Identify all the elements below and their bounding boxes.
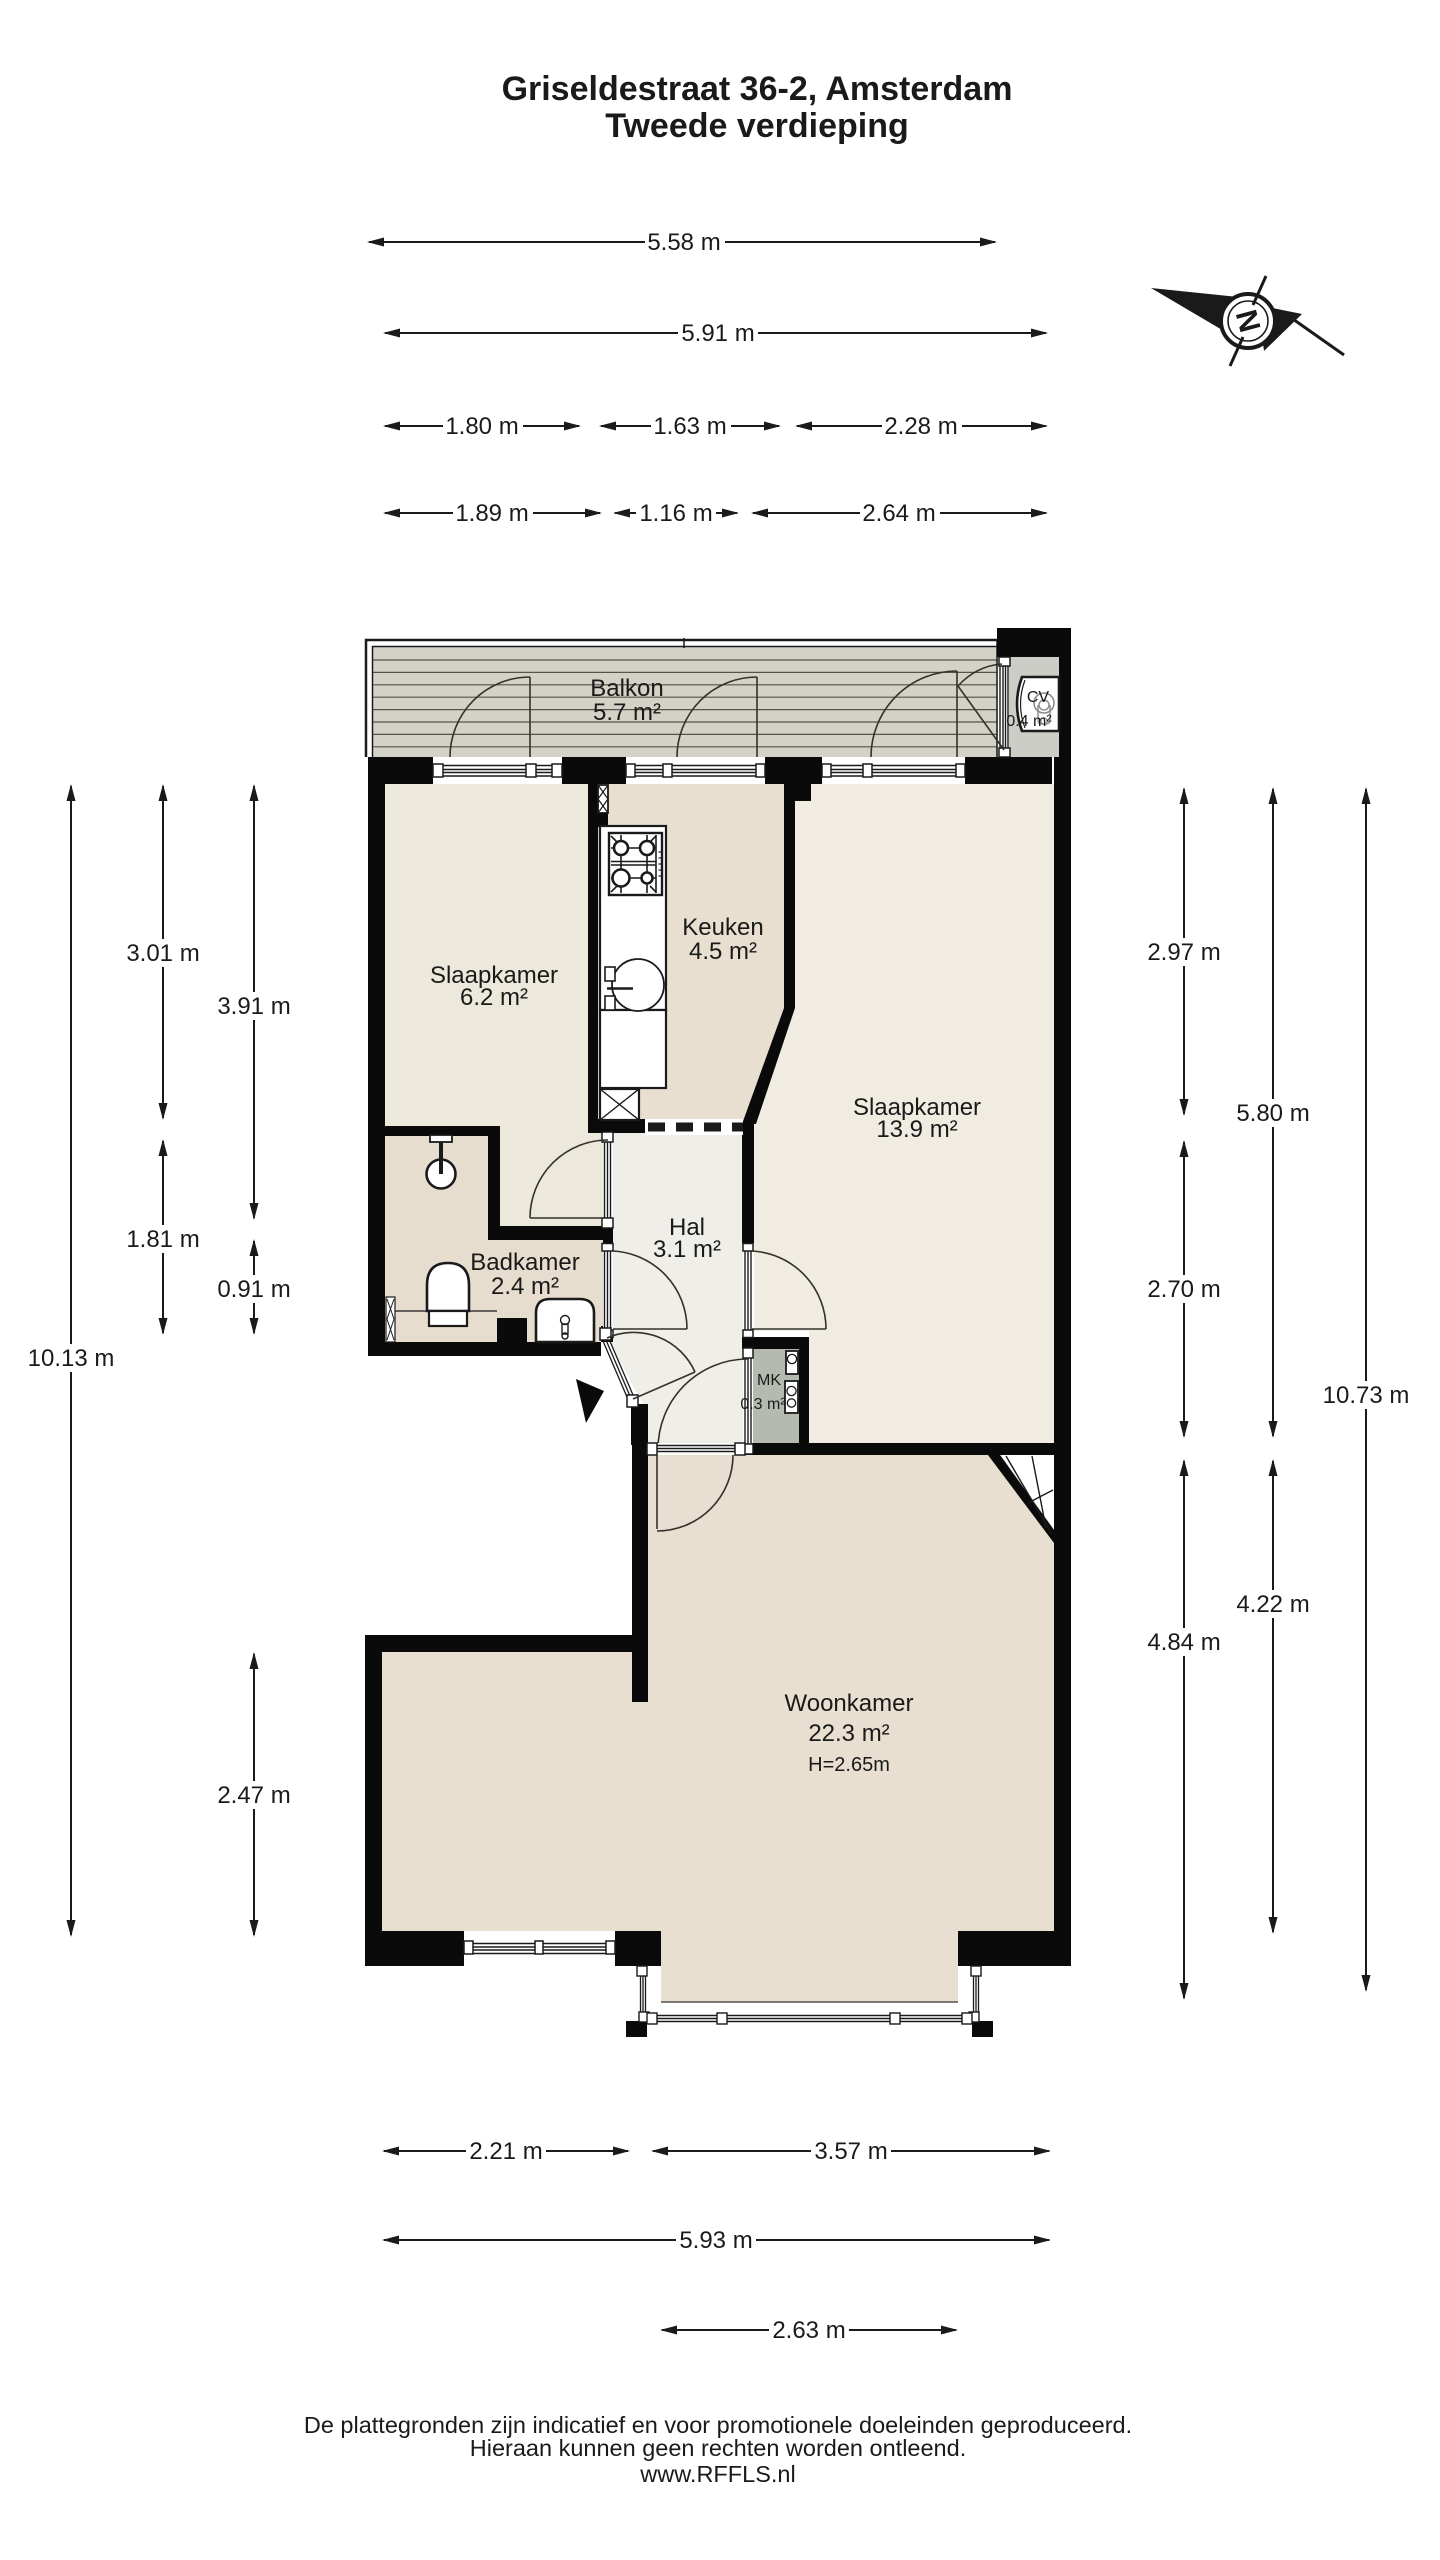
svg-text:1.63 m: 1.63 m bbox=[653, 413, 726, 440]
svg-text:2.28 m: 2.28 m bbox=[884, 413, 957, 440]
svg-text:2.70 m: 2.70 m bbox=[1147, 1276, 1220, 1303]
svg-text:3.57 m: 3.57 m bbox=[814, 2138, 887, 2165]
svg-text:1.89 m: 1.89 m bbox=[455, 500, 528, 527]
svg-text:1.80 m: 1.80 m bbox=[445, 413, 518, 440]
svg-text:4.5 m²: 4.5 m² bbox=[689, 938, 757, 965]
svg-text:Hieraan kunnen geen rechten wo: Hieraan kunnen geen rechten worden ontle… bbox=[470, 2435, 966, 2461]
svg-text:1.16 m: 1.16 m bbox=[639, 500, 712, 527]
svg-text:22.3 m²: 22.3 m² bbox=[808, 1720, 889, 1747]
svg-text:3.01 m: 3.01 m bbox=[126, 940, 199, 967]
svg-text:2.21 m: 2.21 m bbox=[469, 2138, 542, 2165]
svg-text:MK: MK bbox=[757, 1372, 781, 1389]
svg-text:Tweede verdieping: Tweede verdieping bbox=[605, 107, 909, 145]
svg-text:1.81 m: 1.81 m bbox=[126, 1226, 199, 1253]
svg-text:2.63 m: 2.63 m bbox=[772, 2317, 845, 2344]
svg-text:Keuken: Keuken bbox=[682, 914, 763, 941]
svg-text:Woonkamer: Woonkamer bbox=[785, 1690, 914, 1717]
svg-text:5.7 m²: 5.7 m² bbox=[593, 699, 661, 726]
svg-text:Griseldestraat 36-2, Amsterdam: Griseldestraat 36-2, Amsterdam bbox=[502, 70, 1013, 108]
svg-text:2.4 m²: 2.4 m² bbox=[491, 1273, 559, 1300]
svg-text:www.RFFLS.nl: www.RFFLS.nl bbox=[639, 2461, 795, 2487]
svg-text:2.47 m: 2.47 m bbox=[217, 1782, 290, 1809]
svg-text:0.91 m: 0.91 m bbox=[217, 1276, 290, 1303]
svg-text:H=2.65m: H=2.65m bbox=[808, 1754, 890, 1776]
svg-text:5.80 m: 5.80 m bbox=[1236, 1100, 1309, 1127]
svg-text:5.58 m: 5.58 m bbox=[647, 229, 720, 256]
svg-text:5.91 m: 5.91 m bbox=[681, 320, 754, 347]
svg-text:4.84 m: 4.84 m bbox=[1147, 1629, 1220, 1656]
svg-text:Balkon: Balkon bbox=[590, 675, 663, 702]
svg-text:5.93 m: 5.93 m bbox=[679, 2227, 752, 2254]
svg-text:6.2 m²: 6.2 m² bbox=[460, 984, 528, 1011]
svg-text:10.13 m: 10.13 m bbox=[28, 1345, 115, 1372]
svg-text:4.22 m: 4.22 m bbox=[1236, 1591, 1309, 1618]
svg-text:2.97 m: 2.97 m bbox=[1147, 939, 1220, 966]
svg-text:0.4 m²: 0.4 m² bbox=[1006, 713, 1052, 730]
svg-text:3.1 m²: 3.1 m² bbox=[653, 1236, 721, 1263]
svg-text:3.91 m: 3.91 m bbox=[217, 993, 290, 1020]
svg-text:13.9 m²: 13.9 m² bbox=[876, 1116, 957, 1143]
svg-text:Badkamer: Badkamer bbox=[470, 1249, 579, 1276]
svg-text:0.3 m²: 0.3 m² bbox=[740, 1396, 786, 1413]
svg-text:CV: CV bbox=[1027, 689, 1050, 706]
svg-text:10.73 m: 10.73 m bbox=[1323, 1382, 1410, 1409]
svg-text:2.64 m: 2.64 m bbox=[862, 500, 935, 527]
